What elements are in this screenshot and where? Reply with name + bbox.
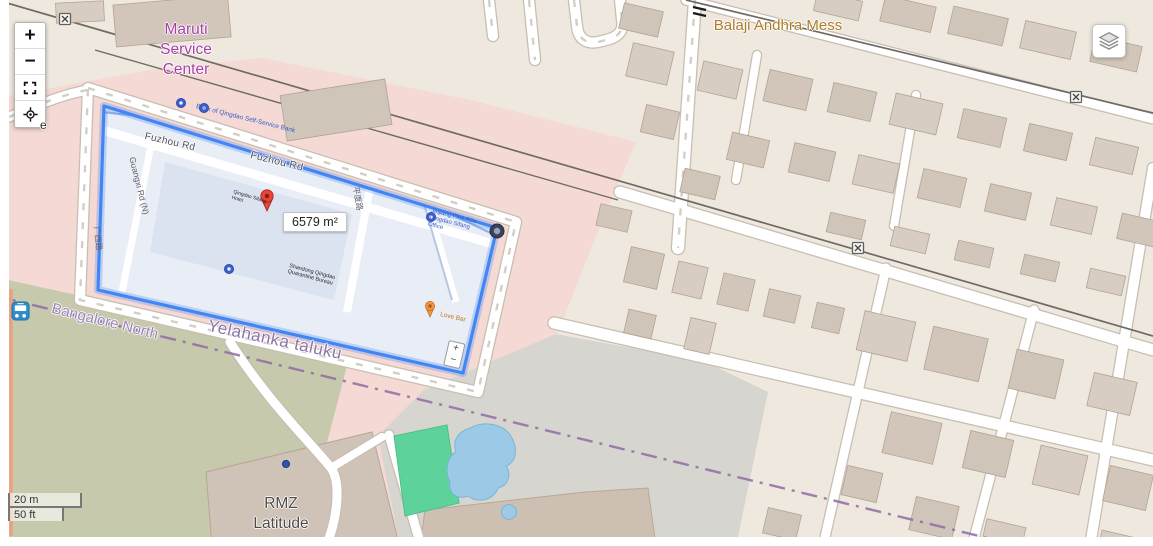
scale-control: 20 m 50 ft [8,493,82,521]
zoom-in-button[interactable]: + [15,23,45,49]
level-crossing-icon [1071,92,1082,103]
poi-marker-icon[interactable] [224,264,233,273]
locate-button[interactable] [15,101,45,127]
basemap-svg[interactable] [0,0,1153,546]
poi-marker-icon[interactable] [176,98,185,107]
route-badge-icon [490,224,504,238]
inset-zoom-out[interactable]: − [449,354,457,367]
page-margin-bottom [0,537,1153,546]
level-crossing-icon [60,14,71,25]
map-zoom-controls: + − [14,22,46,128]
level-crossing-icon [853,243,864,254]
locate-icon [22,106,39,123]
bus-stop-icon[interactable] [11,301,30,322]
fullscreen-button[interactable] [15,75,45,101]
area-measurement-label: 6579 m² [283,212,347,232]
zoom-out-button[interactable]: − [15,49,45,75]
poi-marker-icon[interactable] [199,103,208,112]
map-canvas: + − 20 m 50 ft 6579 m² + − [0,0,1153,546]
page-margin-left [0,0,9,546]
fullscreen-icon [22,80,38,96]
poi-dot-icon[interactable] [282,460,289,467]
poi-marker-icon[interactable] [426,212,435,221]
pond-circle [502,505,517,520]
layers-button[interactable] [1092,24,1126,58]
scale-imperial: 50 ft [8,506,64,521]
layers-icon [1098,30,1120,52]
